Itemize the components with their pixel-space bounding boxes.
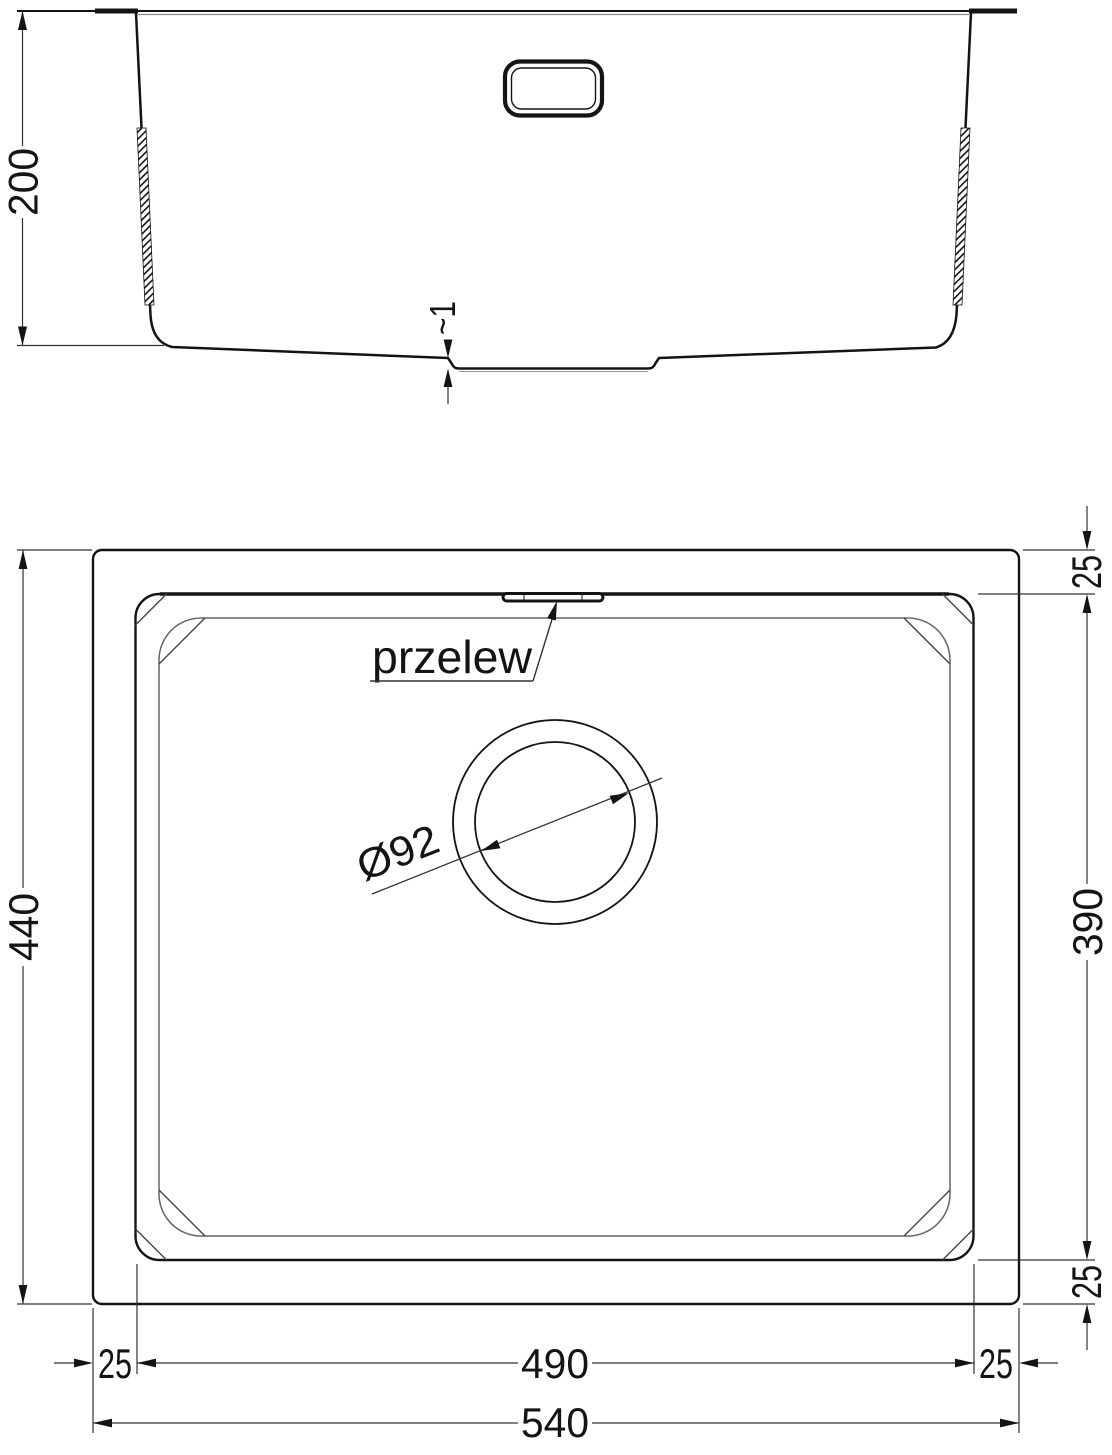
drain-inner-circle (475, 742, 635, 902)
arrowhead-down (444, 340, 453, 359)
step-dim-label: ~1 (422, 301, 463, 335)
arrowhead-down (1083, 531, 1092, 550)
outer-width-label: 540 (521, 1399, 589, 1446)
arrowhead-down (19, 1285, 28, 1304)
corner-chamfer-tr (904, 594, 974, 664)
arrowhead-upper-right (610, 793, 629, 804)
arrowhead-down (18, 327, 27, 346)
arrowhead-up (1083, 1304, 1092, 1323)
arrowhead-up (444, 369, 453, 388)
sink-technical-drawing: 200 ~1 (0, 0, 1112, 1450)
leader-arrowhead (547, 601, 557, 621)
drain-outer-circle (453, 720, 657, 924)
plan-view: Ø92 przelew 440 25 390 (0, 506, 1111, 1446)
arrowhead-right (1000, 1419, 1019, 1428)
dimension-margin-right-25 (1019, 1359, 1058, 1368)
arrowhead-right (955, 1359, 974, 1368)
arrowhead-left (1019, 1359, 1038, 1368)
wall-clip-hatch-left (137, 128, 154, 305)
arrowhead-up (1083, 594, 1092, 613)
overflow-slot (503, 594, 603, 602)
sink-outer-outline (93, 550, 1019, 1304)
margin-top-label: 25 (1063, 555, 1110, 589)
arrowhead-left (137, 1359, 156, 1368)
arrowhead-lower-left (481, 840, 500, 851)
arrowhead-up (18, 11, 27, 30)
bowl-inner-contour (159, 618, 950, 1236)
dimension-margin-left-25 (54, 1359, 93, 1368)
section-view: 200 ~1 (0, 11, 1017, 404)
corner-chamfer-bl (136, 1190, 206, 1260)
arrowhead-left (93, 1419, 112, 1428)
dimension-step-1 (444, 340, 453, 405)
overflow-label: przelew (372, 631, 533, 683)
basin-profile (136, 13, 971, 369)
arrowhead-down (1083, 1241, 1092, 1260)
drain-diameter-label: Ø92 (350, 815, 445, 890)
outer-height-label: 440 (0, 893, 47, 961)
bowl-height-label: 390 (1064, 888, 1111, 956)
margin-bottom-label: 25 (1063, 1265, 1110, 1299)
bowl-corner-chamfers (136, 594, 974, 1260)
technical-drawing-page: 200 ~1 (0, 0, 1112, 1450)
wall-clip-hatch-right (953, 128, 970, 305)
corner-chamfer-tl (136, 594, 206, 664)
margin-left-label: 25 (98, 1340, 132, 1387)
dimension-margin-top-25 (1083, 506, 1092, 550)
arrowhead-up (19, 550, 28, 569)
arrowhead-right (74, 1359, 93, 1368)
corner-chamfer-br (904, 1190, 974, 1260)
overflow-hole-outer (505, 62, 602, 116)
dimension-margin-bottom-25 (1083, 1304, 1092, 1350)
depth-dim-label: 200 (0, 148, 47, 216)
margin-right-label: 25 (979, 1340, 1013, 1387)
bowl-width-label: 490 (521, 1340, 589, 1387)
overflow-hole-inner (512, 68, 596, 109)
bowl-outline (136, 594, 974, 1260)
